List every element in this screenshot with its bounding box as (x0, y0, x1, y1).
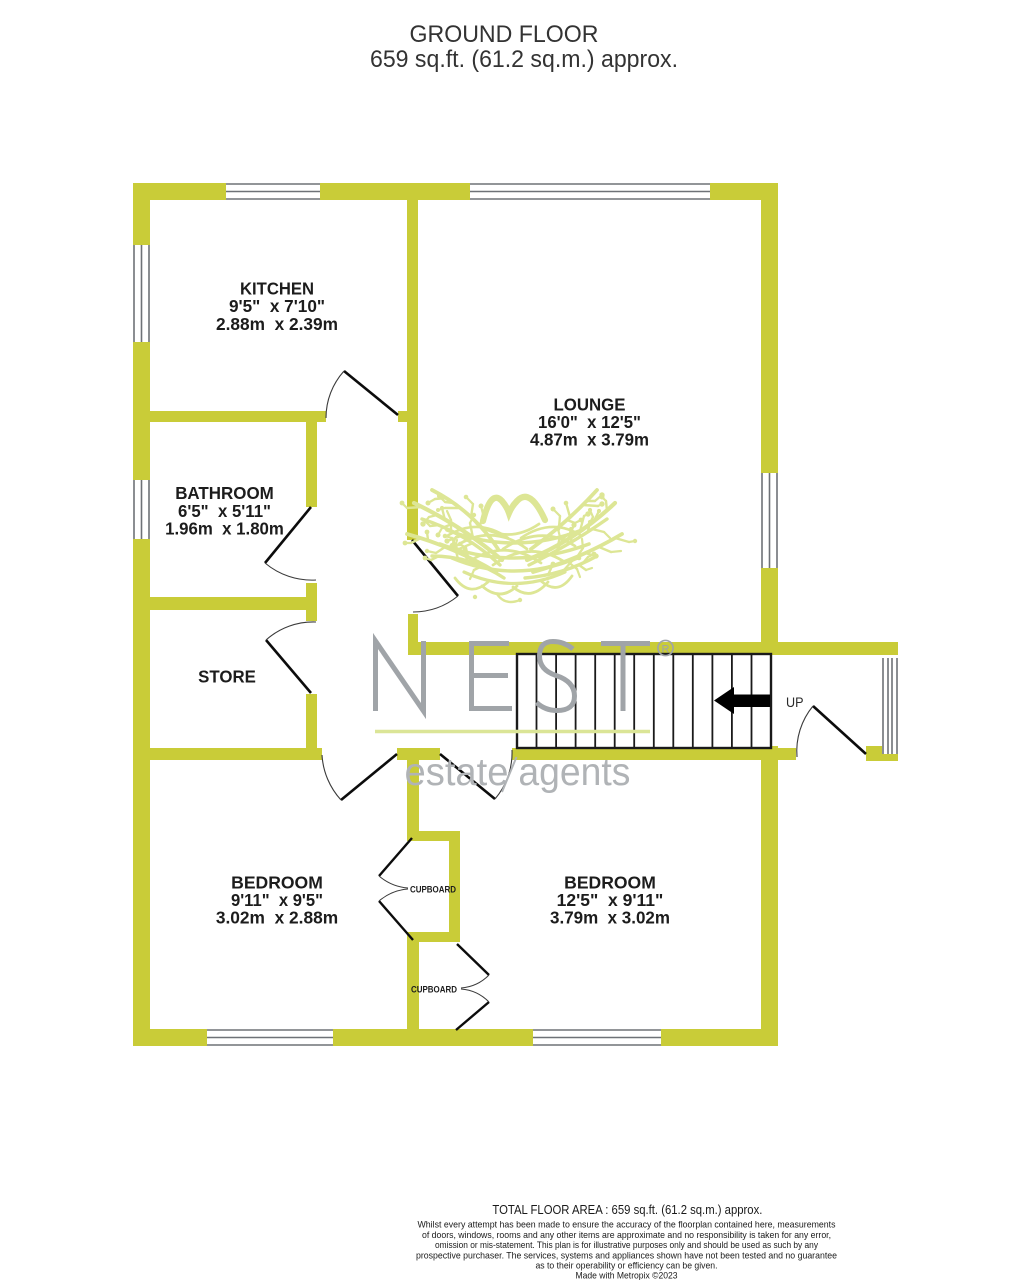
svg-text:Made with Metropix ©2023: Made with Metropix ©2023 (576, 1270, 678, 1280)
svg-text:3.79m x 3.02m: 3.79m x 3.02m (550, 908, 670, 928)
svg-text:R: R (662, 644, 670, 656)
svg-text:4.87m x 3.79m: 4.87m x 3.79m (530, 430, 649, 450)
svg-text:659 sq.ft. (61.2 sq.m.) approx: 659 sq.ft. (61.2 sq.m.) approx. (370, 46, 678, 73)
svg-text:GROUND FLOOR: GROUND FLOOR (410, 21, 599, 48)
svg-text:CUPBOARD: CUPBOARD (411, 985, 457, 995)
svg-text:1.96m x 1.80m: 1.96m x 1.80m (165, 519, 284, 539)
svg-text:STORE: STORE (198, 667, 256, 687)
svg-text:estate: estate (405, 751, 509, 794)
svg-text:CUPBOARD: CUPBOARD (410, 884, 456, 894)
svg-text:3.02m x 2.88m: 3.02m x 2.88m (216, 908, 338, 928)
svg-text:agents: agents (518, 751, 630, 794)
svg-text:UP: UP (786, 695, 804, 710)
svg-text:2.88m x 2.39m: 2.88m x 2.39m (216, 314, 338, 334)
svg-text:TOTAL FLOOR AREA : 659 sq.ft.: TOTAL FLOOR AREA : 659 sq.ft. (61.2 sq.m… (492, 1202, 762, 1217)
